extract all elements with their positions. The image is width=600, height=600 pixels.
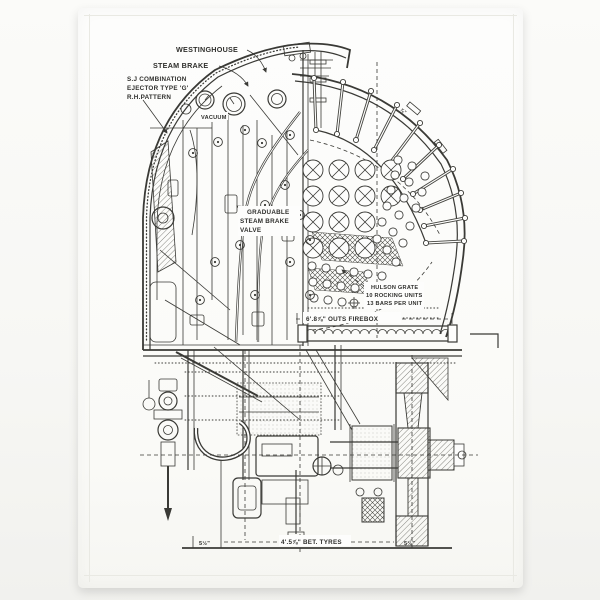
label-graduable-1: GRADUABLE [247, 209, 289, 216]
label-ejector-1: S.J COMBINATION [127, 76, 187, 83]
label-hulson-2: 10 ROCKING UNITS [366, 293, 423, 299]
label-tyre-width-right: 5½" [404, 540, 415, 547]
circle-cross-symbol [348, 297, 360, 309]
label-steam-brake: STEAM BRAKE [153, 61, 208, 70]
label-graduable-2: STEAM BRAKE [240, 218, 289, 225]
label-hulson-1: HULSON GRATE [371, 285, 418, 291]
label-between-tyres: 4'.5⅞" BET. TYRES [281, 539, 342, 546]
pressure-gauges [181, 90, 286, 115]
label-tyre-width-left: 5½" [199, 540, 210, 547]
locomotive-cross-section-diagram: WESTINGHOUSE STEAM BRAKE S.J COMBINATION… [0, 0, 600, 600]
product-photo-scene: WESTINGHOUSE STEAM BRAKE S.J COMBINATION… [0, 0, 600, 600]
grate-bars [298, 325, 457, 342]
label-firebox-width: 6'.8⅞" OUTS FIREBOX [306, 316, 379, 323]
label-graduable-3: VALVE [240, 227, 261, 234]
label-vacuum: VACUUM [201, 115, 227, 121]
label-hulson-3: 13 BARS PER UNIT [367, 301, 423, 307]
label-ejector-3: R.H.PATTERN [127, 94, 171, 101]
label-westinghouse: WESTINGHOUSE [176, 45, 238, 54]
label-ejector-2: EJECTOR TYPE 'G' [127, 85, 189, 92]
